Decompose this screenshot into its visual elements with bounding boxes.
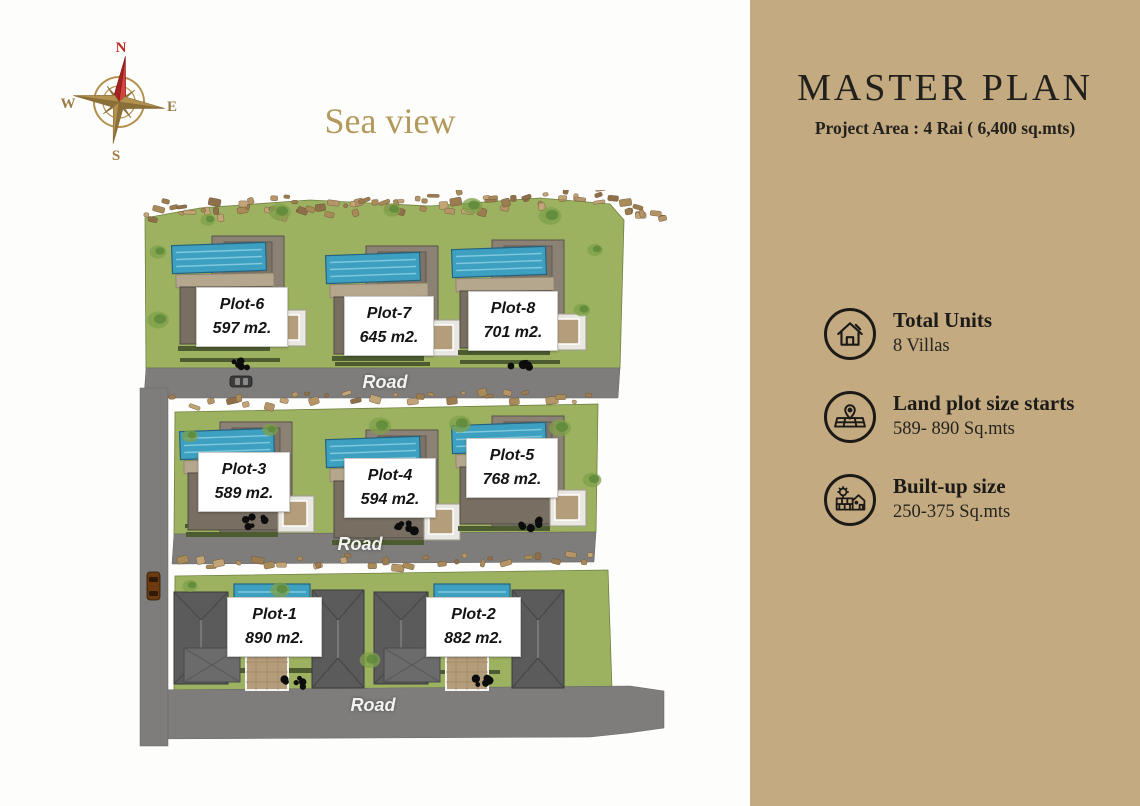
road-label: Road — [340, 372, 430, 393]
plot-name: Plot-1 — [232, 603, 317, 627]
compass-west-label: W — [61, 96, 76, 112]
plot-label-plot-4: Plot-4 594 m2. — [344, 458, 436, 518]
info-item-total-units: Total Units 8 Villas — [824, 308, 1074, 360]
info-item-text: Land plot size starts 589- 890 Sq.mts — [893, 391, 1074, 440]
house-icon — [824, 308, 876, 360]
plot-name: Plot-6 — [201, 293, 283, 317]
built-up-icon — [824, 474, 876, 526]
plot-area: 589 m2. — [203, 482, 285, 506]
info-item-text: Built-up size 250-375 Sq.mts — [893, 474, 1010, 523]
compass-south-label: S — [112, 148, 120, 164]
plot-area: 890 m2. — [232, 627, 317, 651]
info-items: Total Units 8 Villas Land plot size star… — [824, 308, 1074, 526]
plot-name: Plot-5 — [471, 444, 553, 468]
compass-north-label: N — [116, 40, 127, 56]
plot-label-plot-3: Plot-3 589 m2. — [198, 452, 290, 512]
project-area-subtitle: Project Area : 4 Rai ( 6,400 sq.mts) — [750, 118, 1140, 139]
compass-east-label: E — [167, 99, 177, 115]
land-plot-icon — [824, 391, 876, 443]
page-title: MASTER PLAN — [750, 66, 1140, 110]
info-item-land-plot-size: Land plot size starts 589- 890 Sq.mts — [824, 391, 1074, 443]
plot-label-plot-6: Plot-6 597 m2. — [196, 287, 288, 347]
info-item-title: Total Units — [893, 308, 992, 333]
info-item-title: Built-up size — [893, 474, 1010, 499]
plot-name: Plot-7 — [349, 302, 429, 326]
info-item-title: Land plot size starts — [893, 391, 1074, 416]
plot-name: Plot-2 — [431, 603, 516, 627]
plot-name: Plot-3 — [203, 458, 285, 482]
car-icon — [147, 572, 160, 600]
compass-rose-icon: N E S W — [58, 38, 180, 164]
master-plan-page: N E S W Sea view — [0, 0, 1140, 806]
site-plan-panel: N E S W Sea view — [0, 0, 750, 806]
plot-area: 701 m2. — [473, 321, 553, 345]
plot-label-plot-5: Plot-5 768 m2. — [466, 438, 558, 498]
plot-label-plot-2: Plot-2 882 m2. — [426, 597, 521, 657]
plot-label-plot-1: Plot-1 890 m2. — [227, 597, 322, 657]
plot-area: 768 m2. — [471, 468, 553, 492]
info-item-text: Total Units 8 Villas — [893, 308, 992, 357]
road-label: Road — [328, 695, 418, 716]
car-icon — [230, 376, 252, 387]
plot-area: 882 m2. — [431, 627, 516, 651]
info-item-built-up-size: Built-up size 250-375 Sq.mts — [824, 474, 1074, 526]
plot-label-plot-7: Plot-7 645 m2. — [344, 296, 434, 356]
plot-area: 597 m2. — [201, 317, 283, 341]
plot-area: 645 m2. — [349, 326, 429, 350]
plot-name: Plot-4 — [349, 464, 431, 488]
info-item-value: 589- 890 Sq.mts — [893, 419, 1074, 440]
info-item-value: 8 Villas — [893, 336, 992, 357]
plot-area: 594 m2. — [349, 488, 431, 512]
sea-view-label: Sea view — [270, 100, 510, 142]
info-sidebar: MASTER PLAN Project Area : 4 Rai ( 6,400… — [750, 0, 1140, 806]
info-item-value: 250-375 Sq.mts — [893, 502, 1010, 523]
road-label: Road — [315, 534, 405, 555]
plot-label-plot-8: Plot-8 701 m2. — [468, 291, 558, 351]
plot-name: Plot-8 — [473, 297, 553, 321]
road-left — [140, 388, 168, 746]
